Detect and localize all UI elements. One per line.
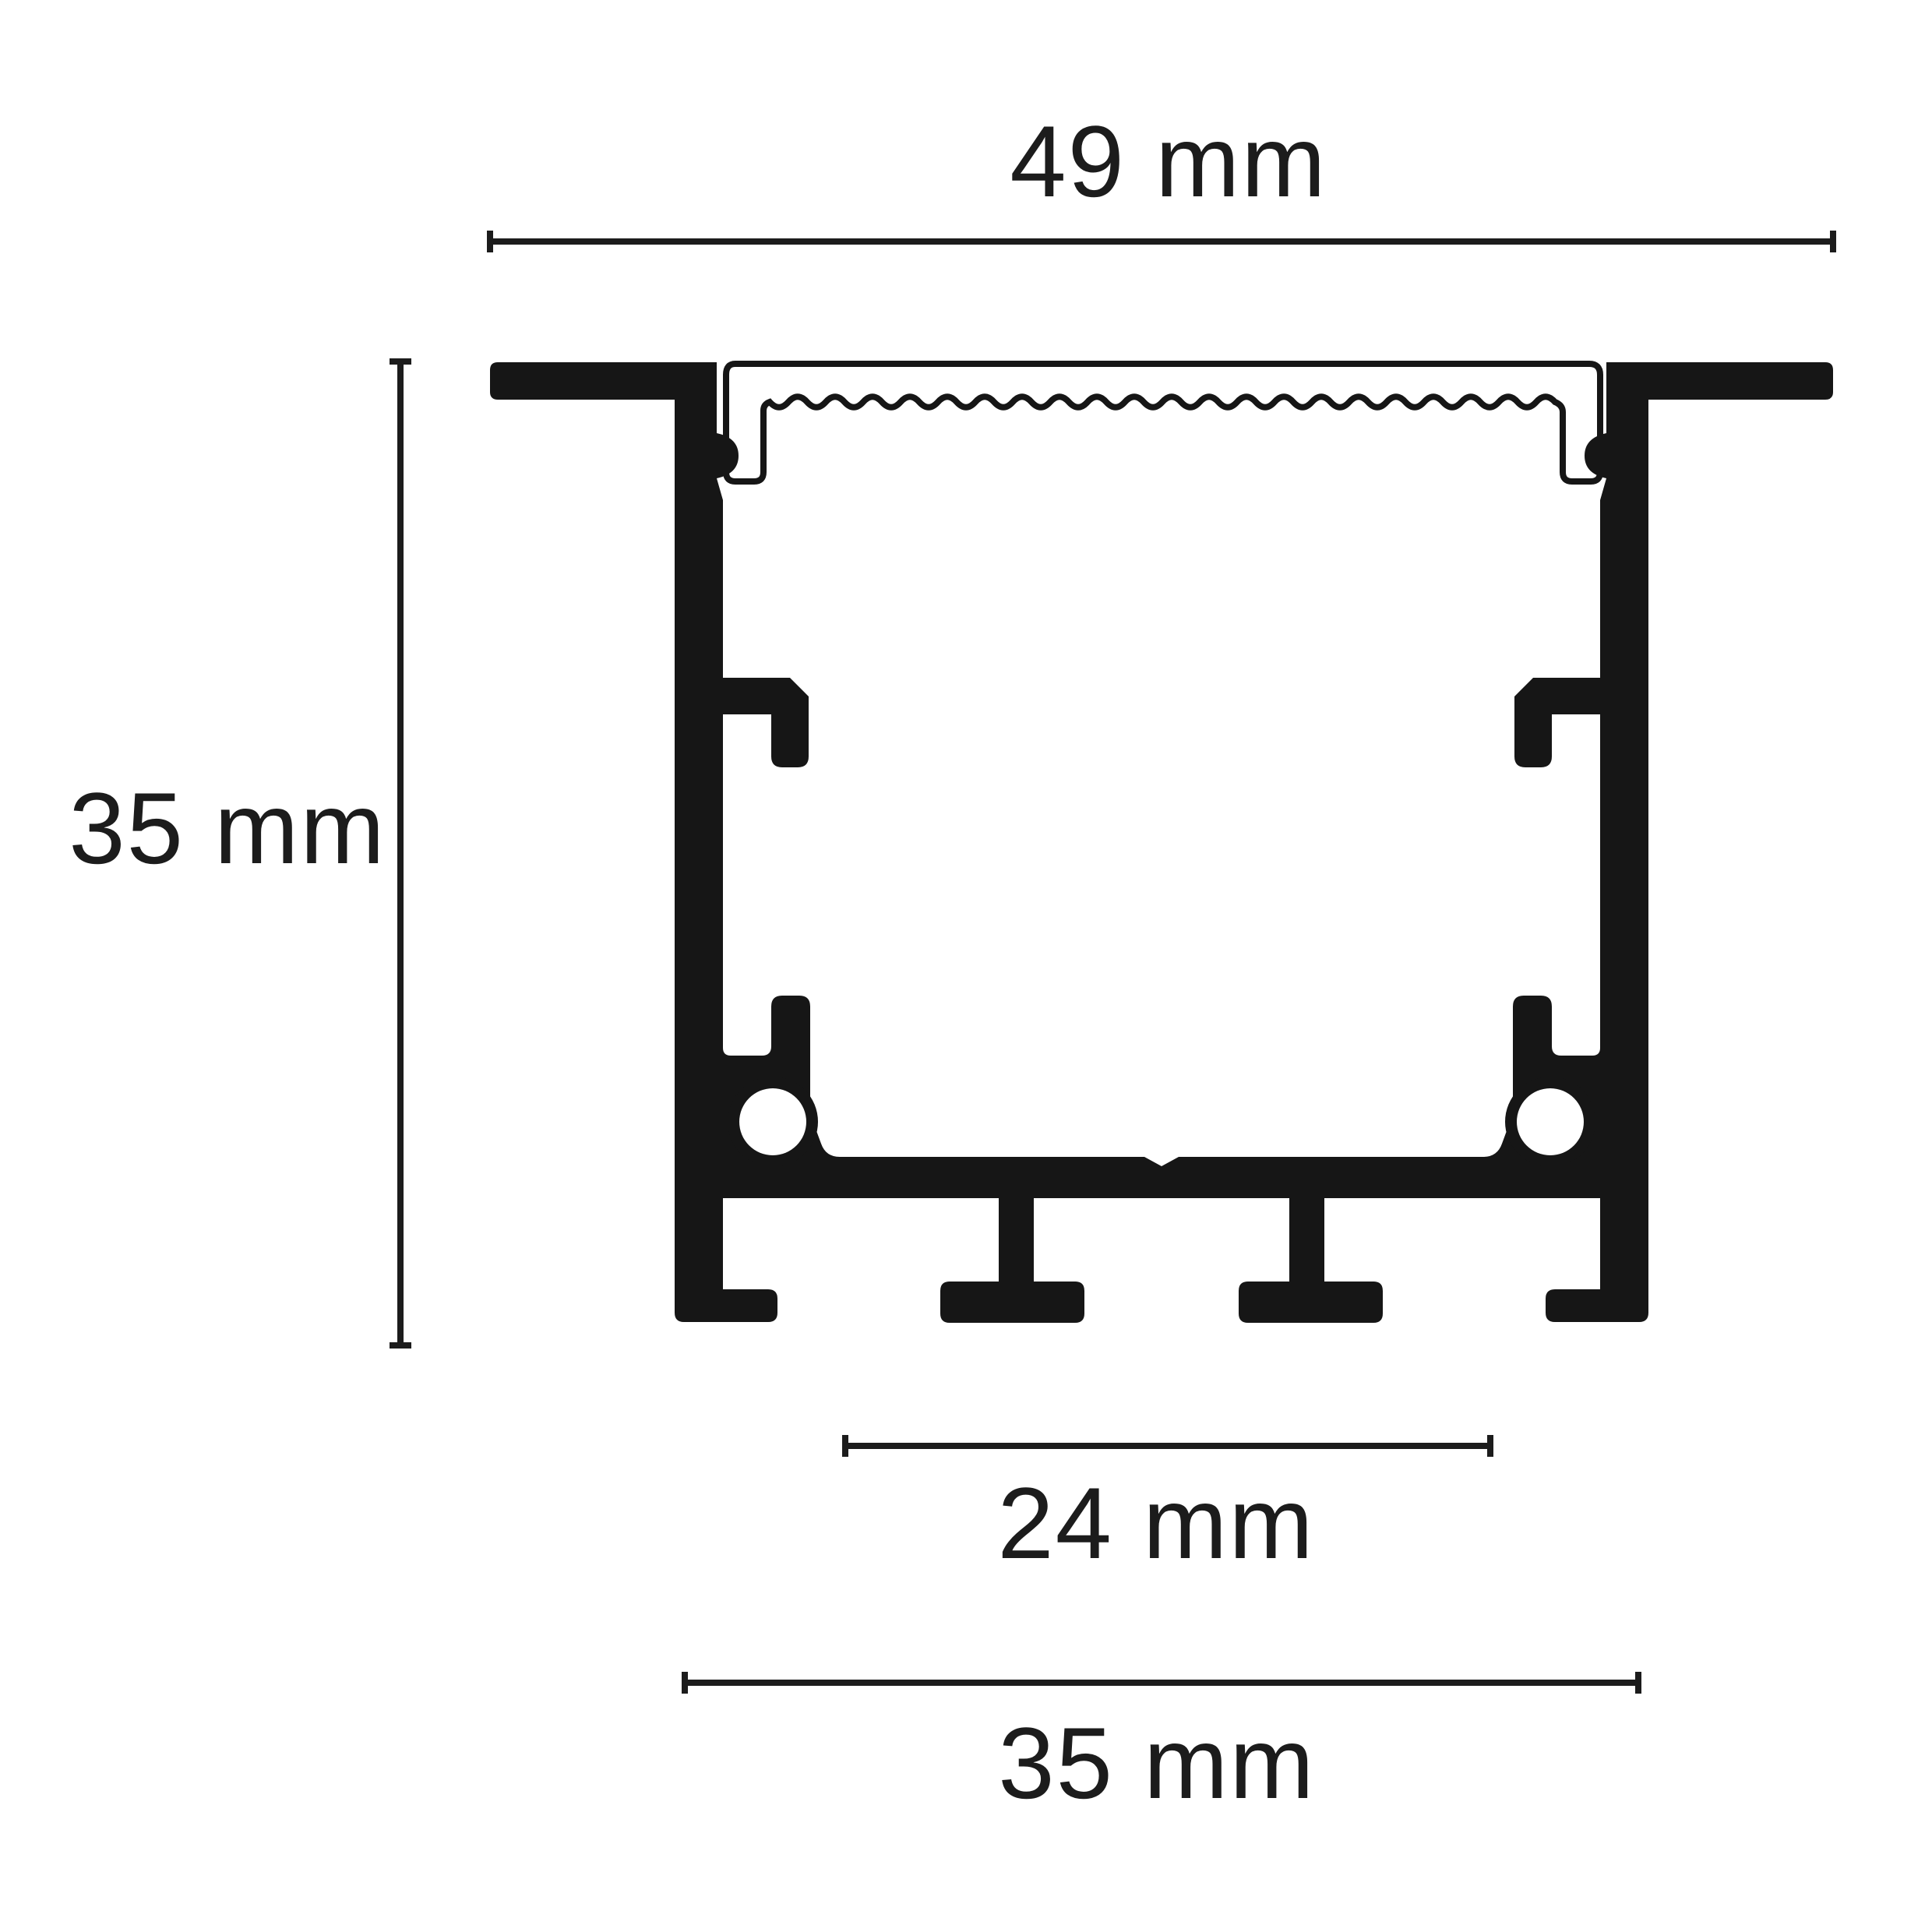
dim-bottom-outer-label: 35 mm	[998, 1706, 1315, 1820]
screw-boss-hole	[739, 1088, 806, 1155]
profile-body-left	[490, 362, 1162, 1323]
dim-bottom-inner-label: 24 mm	[997, 1466, 1314, 1580]
diagram-canvas: 49 mm 35 mm 24 mm 35 mm	[0, 0, 1932, 1932]
dimension-left-height: 35 mm	[69, 361, 411, 1345]
dim-top-width-label: 49 mm	[1010, 104, 1327, 218]
profile-body	[490, 362, 1162, 1323]
profile-cross-section-diagram: 49 mm 35 mm 24 mm 35 mm	[0, 0, 1932, 1932]
mounting-clip-upper	[1514, 678, 1600, 767]
dim-left-height-label: 35 mm	[69, 771, 386, 885]
profile-body-right	[1162, 362, 1833, 1323]
profile-body	[1162, 362, 1833, 1323]
dimension-top-width: 49 mm	[490, 104, 1833, 252]
screw-boss-hole	[1517, 1088, 1584, 1155]
dimension-bottom-outer: 35 mm	[685, 1672, 1638, 1820]
diffuser-cover	[726, 364, 1600, 481]
dimension-bottom-inner: 24 mm	[845, 1435, 1490, 1580]
mounting-clip-upper	[723, 678, 809, 767]
